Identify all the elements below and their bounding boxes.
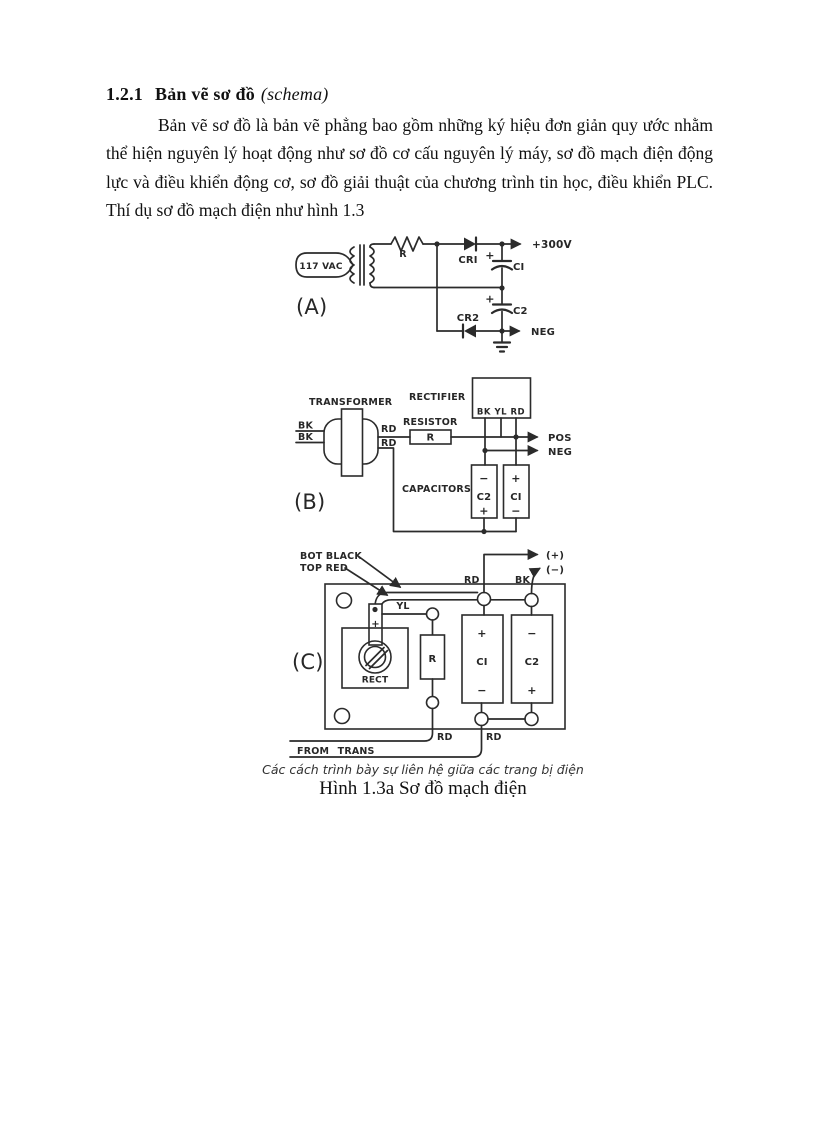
diode-cr1-symbol (464, 238, 476, 251)
label-yl: YL (395, 601, 409, 612)
label-r-b: R (427, 433, 435, 444)
mounting-hole-bottom (335, 709, 350, 724)
ground-symbol (494, 331, 510, 352)
label-rd-bottom-1: RD (437, 732, 453, 743)
label-c2-b: C2 (477, 492, 492, 503)
label-r-c: R (429, 654, 437, 665)
circuit-diagram-svg: 117 VAC (278, 232, 618, 760)
plus-sign-c1-a: + (485, 249, 494, 262)
schematic-section-a: 117 VAC (296, 237, 573, 352)
pictorial-section-b: TRANSFORMER BK BK RD RD RESISTOR R RECTI… (294, 378, 572, 534)
minus-sign-c2-b: − (479, 472, 488, 485)
minus-sign-c1-c: − (477, 684, 486, 697)
label-neg-a: NEG (531, 327, 555, 338)
layout-section-c: BOT BLACK TOP RED (+) (−) RD BK (290, 551, 565, 758)
capacitor-c2-symbol (492, 288, 512, 331)
label-cr1: CRI (458, 255, 477, 266)
mounting-hole-top (337, 593, 352, 608)
capacitor-top-links (484, 606, 532, 616)
label-out-neg: (−) (546, 565, 564, 576)
label-top-red: TOP RED (300, 563, 348, 574)
figure-caption-title: Hình 1.3a Sơ đồ mạch điện (128, 778, 718, 800)
plus-sign-c2-a: + (485, 293, 494, 306)
section-label-c: (C) (292, 650, 324, 674)
label-rd-2: RD (381, 438, 397, 449)
leader-bot-black (358, 556, 400, 587)
figure-circuit-diagram: 117 VAC (278, 232, 618, 760)
label-plus300v: +300V (532, 239, 573, 251)
capacitor-bottom-leads (484, 518, 516, 532)
label-c1-b: CI (510, 492, 521, 503)
label-pos: POS (548, 433, 572, 444)
document-page: 1.2.1Bản vẽ sơ đồ(schema) Bản vẽ sơ đồ l… (0, 0, 816, 1123)
label-bk-1: BK (298, 421, 313, 432)
label-capacitors: CAPACITORS (402, 484, 471, 495)
wires-a (374, 237, 520, 331)
resistor-zigzag (391, 237, 423, 251)
label-cr2: CR2 (457, 313, 480, 324)
label-bk-2: BK (298, 432, 313, 443)
label-c2-a: C2 (513, 306, 528, 317)
terminal-r-bottom (427, 697, 439, 709)
label-out-pos: (+) (546, 551, 564, 562)
plus-sign-c1-b: + (511, 472, 520, 485)
label-bk-c: BK (515, 575, 530, 586)
terminal-r-top (427, 608, 439, 620)
label-117vac: 117 VAC (299, 262, 342, 272)
plus-sign-c2-b: + (479, 505, 488, 518)
pos-output-wire (484, 555, 537, 593)
minus-sign-c2-c: − (527, 627, 536, 640)
label-from-trans: FROM TRANS (297, 746, 375, 757)
rectifier-leads (485, 418, 516, 465)
section-label-b: (B) (294, 490, 325, 514)
label-bot-black: BOT BLACK (300, 551, 362, 562)
label-c1-c: CI (476, 657, 487, 668)
plus-sign-c1-c: + (477, 627, 486, 640)
minus-sign-c1-b: − (511, 505, 520, 518)
section-heading: 1.2.1Bản vẽ sơ đồ(schema) (106, 84, 726, 105)
plus-sign-c2-c: + (527, 684, 536, 697)
diode-cr2-symbol (463, 325, 476, 338)
terminal-c1-bottom (475, 713, 488, 726)
label-rectifier: RECTIFIER (409, 392, 466, 403)
r-bottom-wire (290, 709, 433, 742)
label-c2-c: C2 (525, 657, 540, 668)
label-rd-top-c: RD (464, 575, 480, 586)
label-bk-yl-rd: BK YL RD (477, 408, 525, 418)
section-title: Bản vẽ sơ đồ (155, 84, 255, 104)
label-r-a: R (399, 249, 407, 260)
capacitor-bottom-links (482, 703, 532, 713)
capacitor-c1-symbol (492, 244, 512, 288)
section-subtitle: (schema) (261, 84, 329, 104)
terminal-bk (525, 594, 538, 607)
section-label-a: (A) (296, 295, 327, 319)
label-resistor: RESISTOR (403, 417, 458, 428)
terminal-c2-bottom (525, 713, 538, 726)
label-rd-bottom-2: RD (486, 732, 502, 743)
label-transformer: TRANSFORMER (309, 397, 393, 408)
screw-head (359, 641, 391, 673)
label-rect: RECT (362, 676, 389, 686)
terminal-rd (478, 593, 491, 606)
neg-output-wire (532, 569, 540, 594)
section-number: 1.2.1 (106, 84, 143, 104)
transformer-block (324, 409, 378, 476)
figure-caption-note: Các cách trình bày sự liên hệ giữa các t… (128, 762, 718, 777)
label-rd-1: RD (381, 424, 397, 435)
body-paragraph: Bản vẽ sơ đồ là bản vẽ phẳng bao gồm nhữ… (106, 111, 713, 225)
label-c1-a: CI (513, 262, 524, 273)
label-neg: NEG (548, 447, 572, 458)
